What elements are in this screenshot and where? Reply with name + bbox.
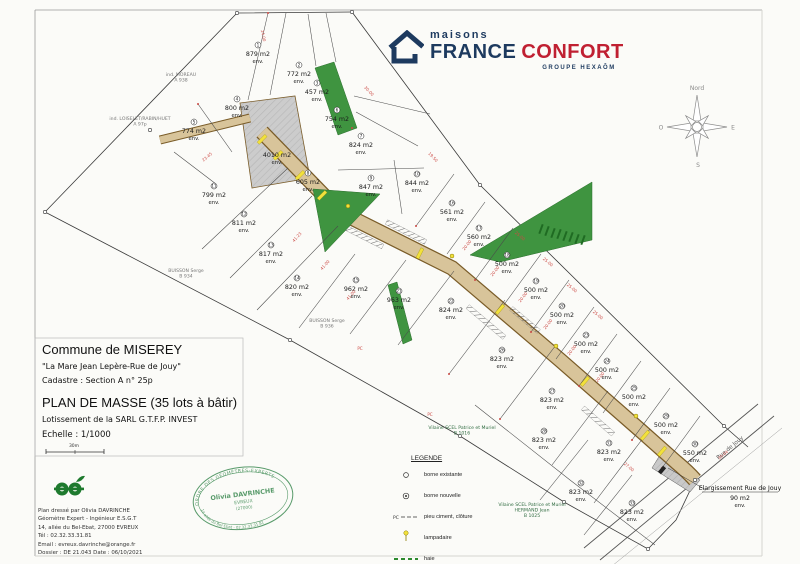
legend-label: haie <box>424 556 435 562</box>
lot-area-label: 823 m2 <box>597 449 621 456</box>
lot-number: 33 <box>629 501 635 506</box>
fence-prefix: PC <box>393 515 399 521</box>
lot-area-label: 550 m2 <box>683 450 707 457</box>
surveyor-line-1: Plan dressé par Olivia DAVRINCHE <box>38 507 188 515</box>
lot-area-label: 754 m2 <box>325 116 349 123</box>
lot-env-label: env. <box>603 457 614 463</box>
lot-env-label: env. <box>546 405 557 411</box>
owner-parcel-label: Vilaine SCEL Patrice et Muriel <box>428 425 495 431</box>
lot-env-label: env. <box>580 349 591 355</box>
lot-area-label: 500 m2 <box>550 312 574 319</box>
lot-env-label: env. <box>496 364 507 370</box>
dimension-label: 23.45 <box>201 151 213 163</box>
lot-number: 24 <box>604 359 610 364</box>
legend-row-pieu-cloture: PC pieu ciment, clôture <box>393 508 503 526</box>
hedge-icon <box>393 550 419 564</box>
lot-number: 17 <box>476 226 482 231</box>
lot-area-label: 820 m2 <box>285 284 309 291</box>
lot-area-label: 817 m2 <box>259 251 283 258</box>
lot-number: 27 <box>549 389 555 394</box>
legend-label: borne nouvelle <box>424 493 461 499</box>
lot-number: 2 <box>298 63 301 68</box>
survey-markers <box>43 10 725 550</box>
lot-number: 12 <box>241 212 247 217</box>
dimension-label: 24.00 <box>260 29 267 42</box>
lot-number: 20 <box>559 304 565 309</box>
lot-number: 5 <box>193 120 196 125</box>
lot-env-label: env. <box>355 150 366 156</box>
owner-parcel-label: HERMAND Jean <box>515 508 550 514</box>
lot-area-label: 500 m2 <box>622 394 646 401</box>
site-subtitle: "La Mare Jean Lepère-Rue de Jouy" <box>42 362 242 371</box>
lot-number: 18 <box>504 253 510 258</box>
lot-number: 6 <box>336 108 339 113</box>
owner-parcel-label: B 934 <box>179 274 192 280</box>
lot-number: 10 <box>414 172 420 177</box>
legend: LEGENDE borne existante borne nouvelle P… <box>393 455 503 564</box>
logo-france-text: FRANCE <box>430 41 516 63</box>
lot-number: 32 <box>578 481 584 486</box>
dimension-label: 41.00 <box>319 259 331 271</box>
owner-parcel-label: BUISSON Serge <box>168 268 204 274</box>
lot-area-label: 799 m2 <box>202 192 226 199</box>
legend-row-borne-nouvelle: borne nouvelle <box>393 487 503 505</box>
lot-area-label: 500 m2 <box>524 287 548 294</box>
lot-area-label: 823 m2 <box>569 489 593 496</box>
lot-area-label: 963 m2 <box>387 297 411 304</box>
lot-area-label: 772 m2 <box>287 71 311 78</box>
commune-title: Commune de MISEREY <box>42 342 242 357</box>
logo-maisons-text: maisons <box>430 30 624 41</box>
legend-label: lampadaire <box>424 535 452 541</box>
lot-area-label: 824 m2 <box>349 142 373 149</box>
dimension-label: 19.50 <box>427 151 439 163</box>
logo-confort-text: CONFORT <box>521 41 623 63</box>
lot-area-label: 605 m2 <box>296 179 320 186</box>
lot-number: 4 <box>236 97 239 102</box>
compass-rose: Nord O E S <box>659 85 735 169</box>
compass-north-label: Nord <box>690 85 705 92</box>
widening-area: 90 m2 <box>730 495 750 502</box>
dimension-label: PC <box>427 412 432 417</box>
lot-env-label: env. <box>538 445 549 451</box>
lot-env-label: env. <box>530 295 541 301</box>
lot-env-label: env. <box>331 124 342 130</box>
lot-env-label: env. <box>231 113 242 119</box>
lot-area-label: 811 m2 <box>232 220 256 227</box>
compass-west-label: O <box>659 125 664 132</box>
owner-parcel-label: BUISSON Serge <box>309 318 345 324</box>
surveyor-line-2: Géomètre Expert - Ingénieur E.S.G.T <box>38 515 188 523</box>
owner-parcel-label: A 938 <box>174 78 187 84</box>
lot-area-label: 500 m2 <box>654 422 678 429</box>
lot-env-label: env. <box>188 136 199 142</box>
surveyor-stamp: ORDRE DES GÉOMÈTRES-EXPERTS Olivia DAVRI… <box>186 452 304 544</box>
lot-number: 21 <box>396 289 402 294</box>
lot-number: 7 <box>360 134 363 139</box>
lot-area-label: 560 m2 <box>467 234 491 241</box>
lot-area-label: 823 m2 <box>620 509 644 516</box>
lot-area-label: 457 m2 <box>305 89 329 96</box>
lot-env-label: env. <box>291 292 302 298</box>
house-icon <box>388 30 424 64</box>
lot-area-label: 800 m2 <box>225 105 249 112</box>
lot-env-label: env. <box>271 160 282 166</box>
lot-area-label: 879 m2 <box>246 51 270 58</box>
lot-env-label: env. <box>238 228 249 234</box>
lot-env-label: env. <box>208 200 219 206</box>
lot-env-label: env. <box>445 315 456 321</box>
scale-bar: 30m <box>42 442 122 456</box>
lotissement-subtitle: Lotissement de la SARL G.T.F.P. INVEST <box>42 415 242 424</box>
owner-parcel-label: B 1025 <box>524 513 540 519</box>
surveyor-line-6: Dossier : DE 21.043 Date : 06/10/2021 <box>38 549 188 557</box>
lot-env-label: env. <box>473 242 484 248</box>
scale-bar-label: 30m <box>69 443 79 449</box>
stamp-postcode: (27000) <box>236 504 253 511</box>
lot-number: 22 <box>448 299 454 304</box>
lot-env-label: env. <box>293 79 304 85</box>
owner-parcel-label: Vilaine SCEL Patrice et Muriel <box>498 502 565 508</box>
streetlamp-icon <box>393 529 419 547</box>
lot-number: 8 <box>307 171 310 176</box>
lot-env-label: env. <box>311 97 322 103</box>
lot-area-label: 4010 m2 <box>263 152 291 159</box>
lot-env-label: env. <box>628 402 639 408</box>
cadastre-reference: Cadastre : Section A n° 25p <box>42 376 242 385</box>
lot-area-label: 500 m2 <box>595 367 619 374</box>
owner-parcel-label: A 97p <box>133 122 146 128</box>
lot-number: 19 <box>533 279 539 284</box>
widening-env: env. <box>734 503 745 509</box>
owner-parcel-label: B 1016 <box>454 431 470 437</box>
surveyor-line-3: 14, allée du Bel-Ebat, 27000 EVREUX <box>38 524 188 532</box>
dimension-label: 41.23 <box>291 231 303 243</box>
plan-sheet: Elargissement Rue de Jouy 90 m2 env. Rue… <box>0 0 800 564</box>
lot-env-label: env. <box>575 497 586 503</box>
lot-area-label: 823 m2 <box>540 397 564 404</box>
dimension-label: 25.00 <box>542 256 554 268</box>
surveyor-line-5: Email : evreux.davrinche@orange.fr <box>38 541 188 549</box>
lot-area-label: 824 m2 <box>439 307 463 314</box>
legend-label: borne existante <box>424 472 462 478</box>
legend-row-borne-existante: borne existante <box>393 466 503 484</box>
dimension-label: 27.00 <box>623 461 635 473</box>
lot-number: 9 <box>370 176 373 181</box>
legend-title: LEGENDE <box>411 455 503 462</box>
lot-number: 3 <box>316 81 319 86</box>
surveyor-logo-icon <box>52 474 86 500</box>
lot-env-label: env. <box>660 430 671 436</box>
lot-env-label: env. <box>411 188 422 194</box>
lot-number: 14 <box>294 276 300 281</box>
lot-area-label: 847 m2 <box>359 184 383 191</box>
lot-env-label: env. <box>446 217 457 223</box>
lot-number: 31 <box>606 441 612 446</box>
lot-number: 26 <box>499 348 505 353</box>
scale-text: Echelle : 1/1000 <box>42 430 242 440</box>
lot-area-label: 774 m2 <box>182 128 206 135</box>
dimension-label: 25.00 <box>566 282 578 294</box>
lot-number: 15 <box>353 278 359 283</box>
lot-number: 29 <box>663 414 669 419</box>
lot-area-label: 823 m2 <box>532 437 556 444</box>
lot-number: 30 <box>692 442 698 447</box>
plan-title: PLAN DE MASSE (35 lots à bâtir) <box>42 395 242 410</box>
lot-number: 25 <box>631 386 637 391</box>
stamp-arc-bottom: 14 allée du Bel-Ebat - 02.32.33.31.81 <box>200 501 266 534</box>
lot-number: 1 <box>257 43 260 48</box>
brand-logo: maisons FRANCECONFORT GROUPE HEXAÔM <box>388 30 624 71</box>
legend-row-haie: haie <box>393 550 503 564</box>
dimension-label: PC <box>357 346 362 351</box>
lot-env-label: env. <box>556 320 567 326</box>
lot-number: 13 <box>268 243 274 248</box>
dimension-label: 25.00 <box>592 309 604 321</box>
surveyor-block: Plan dressé par Olivia DAVRINCHE Géomètr… <box>38 474 188 557</box>
dimension-label: 30.00 <box>363 85 375 97</box>
fence-line-icon: PC <box>393 508 419 526</box>
existing-marker-icon <box>393 466 419 484</box>
surveyor-line-4: Tél : 02.32.33.31.81 <box>38 532 188 540</box>
lot-env-label: env. <box>365 192 376 198</box>
logo-group-text: GROUPE HEXAÔM <box>430 65 624 71</box>
lot-env-label: env. <box>393 305 404 311</box>
lot-number: 28 <box>541 429 547 434</box>
lot-number: 11 <box>211 184 217 189</box>
lot-number: 23 <box>583 333 589 338</box>
lot-area-label: 844 m2 <box>405 180 429 187</box>
title-block: Commune de MISEREY "La Mare Jean Lepère-… <box>42 342 242 461</box>
lot-env-label: env. <box>501 269 512 275</box>
lot-number: 16 <box>449 201 455 206</box>
compass-south-label: S <box>696 162 700 169</box>
owner-parcel-label: B 936 <box>320 324 333 330</box>
lot-area-label: 500 m2 <box>574 341 598 348</box>
legend-row-lampadaire: lampadaire <box>393 529 503 547</box>
owner-parcel-label: ind. MOREAU <box>166 72 196 78</box>
compass-east-label: E <box>731 125 735 132</box>
lot-env-label: env. <box>689 458 700 464</box>
new-marker-icon <box>393 487 419 505</box>
lot-env-label: env. <box>626 517 637 523</box>
svg-text:14 allée du Bel-Ebat - 02.32.3: 14 allée du Bel-Ebat - 02.32.33.31.81 <box>200 501 266 534</box>
dimension-label: 20.00 <box>542 318 553 331</box>
lot-env-label: env. <box>302 187 313 193</box>
owner-parcel-label: ind. LOISELET/RABIN/HUET <box>109 116 170 122</box>
lot-env-label: env. <box>265 259 276 265</box>
lot-area-label: 561 m2 <box>440 209 464 216</box>
legend-label: pieu ciment, clôture <box>424 514 473 520</box>
widening-title: Elargissement Rue de Jouy <box>699 485 782 492</box>
lot-env-label: env. <box>252 59 263 65</box>
lot-area-label: 823 m2 <box>490 356 514 363</box>
